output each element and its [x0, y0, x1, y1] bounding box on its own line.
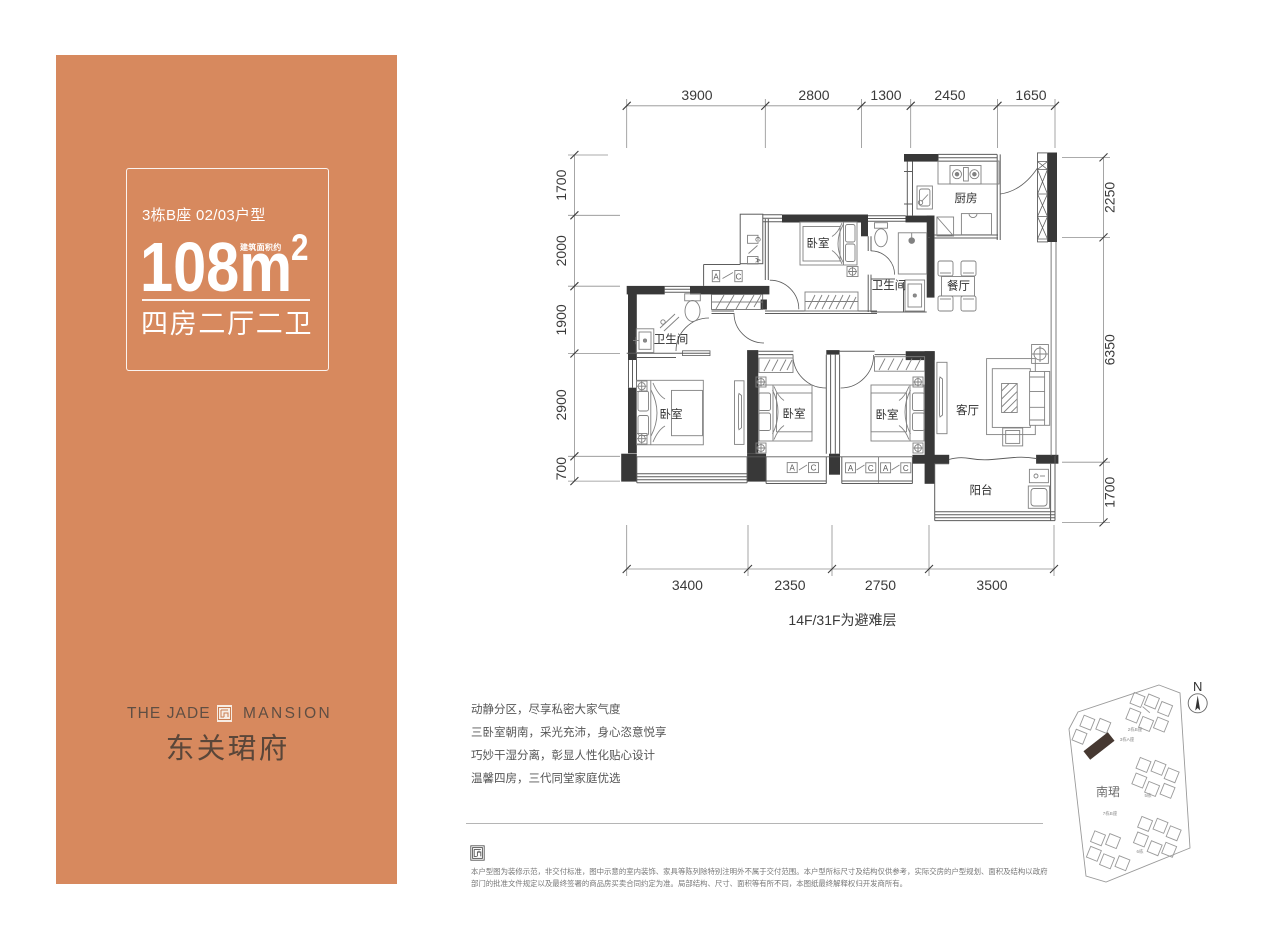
- svg-text:C: C: [903, 464, 909, 473]
- svg-text:2900: 2900: [553, 389, 569, 420]
- svg-text:卧室: 卧室: [660, 407, 683, 421]
- svg-text:2350: 2350: [774, 577, 805, 593]
- svg-text:卧室: 卧室: [876, 408, 899, 422]
- svg-text:3500: 3500: [976, 577, 1007, 593]
- svg-text:N: N: [1193, 679, 1202, 694]
- svg-text:卧室: 卧室: [783, 407, 806, 421]
- svg-text:2栋B座: 2栋B座: [1128, 726, 1143, 733]
- svg-text:1650: 1650: [1015, 87, 1046, 103]
- svg-text:700: 700: [553, 457, 569, 481]
- svg-text:卧室: 卧室: [807, 236, 830, 250]
- svg-text:1300: 1300: [870, 87, 901, 103]
- svg-text:2750: 2750: [865, 577, 896, 593]
- svg-text:卫生间: 卫生间: [654, 332, 689, 346]
- svg-text:阳台: 阳台: [970, 483, 993, 497]
- svg-text:6栋: 6栋: [1136, 848, 1144, 855]
- svg-text:南珺: 南珺: [1096, 784, 1120, 799]
- svg-text:1700: 1700: [1102, 477, 1118, 508]
- svg-text:3900: 3900: [681, 87, 712, 103]
- svg-text:1700: 1700: [553, 169, 569, 200]
- svg-text:厨房: 厨房: [955, 192, 978, 205]
- svg-text:A: A: [790, 464, 796, 473]
- svg-text:6350: 6350: [1102, 334, 1118, 365]
- svg-text:1900: 1900: [553, 304, 569, 335]
- svg-text:3栋A座: 3栋A座: [1120, 736, 1135, 743]
- svg-text:A: A: [883, 464, 889, 473]
- svg-text:A: A: [713, 272, 719, 281]
- svg-text:A: A: [848, 464, 854, 473]
- svg-text:C: C: [736, 272, 742, 281]
- svg-text:卫生间: 卫生间: [872, 278, 907, 292]
- svg-text:2450: 2450: [934, 87, 965, 103]
- svg-text:2800: 2800: [798, 87, 829, 103]
- svg-text:2000: 2000: [553, 235, 569, 266]
- svg-text:餐厅: 餐厅: [947, 279, 970, 293]
- svg-text:A: A: [754, 258, 761, 263]
- svg-text:C: C: [754, 237, 761, 242]
- svg-text:7栋B座: 7栋B座: [1103, 810, 1118, 817]
- svg-text:客厅: 客厅: [956, 403, 979, 417]
- svg-text:14F/31F为避难层: 14F/31F为避难层: [788, 612, 896, 628]
- svg-text:2250: 2250: [1102, 182, 1118, 213]
- svg-text:5栋: 5栋: [1144, 792, 1152, 799]
- svg-text:3400: 3400: [672, 577, 703, 593]
- svg-text:C: C: [811, 464, 817, 473]
- svg-text:C: C: [868, 464, 874, 473]
